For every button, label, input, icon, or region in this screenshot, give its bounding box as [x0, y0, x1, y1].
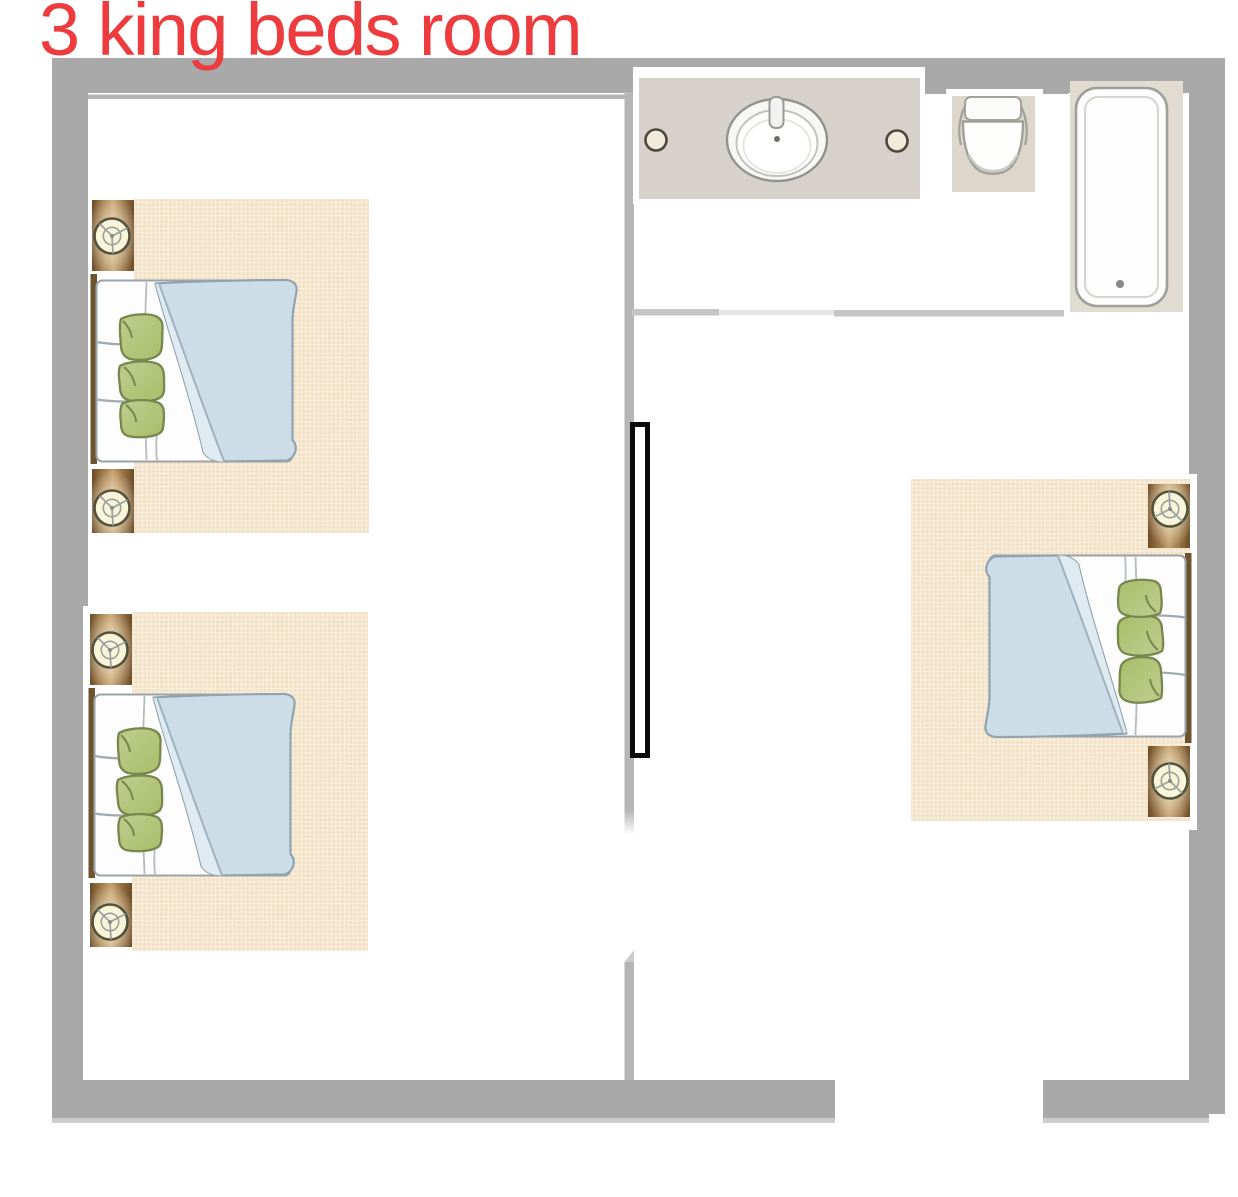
svg-text:3 king beds room: 3 king beds room	[39, 0, 581, 71]
